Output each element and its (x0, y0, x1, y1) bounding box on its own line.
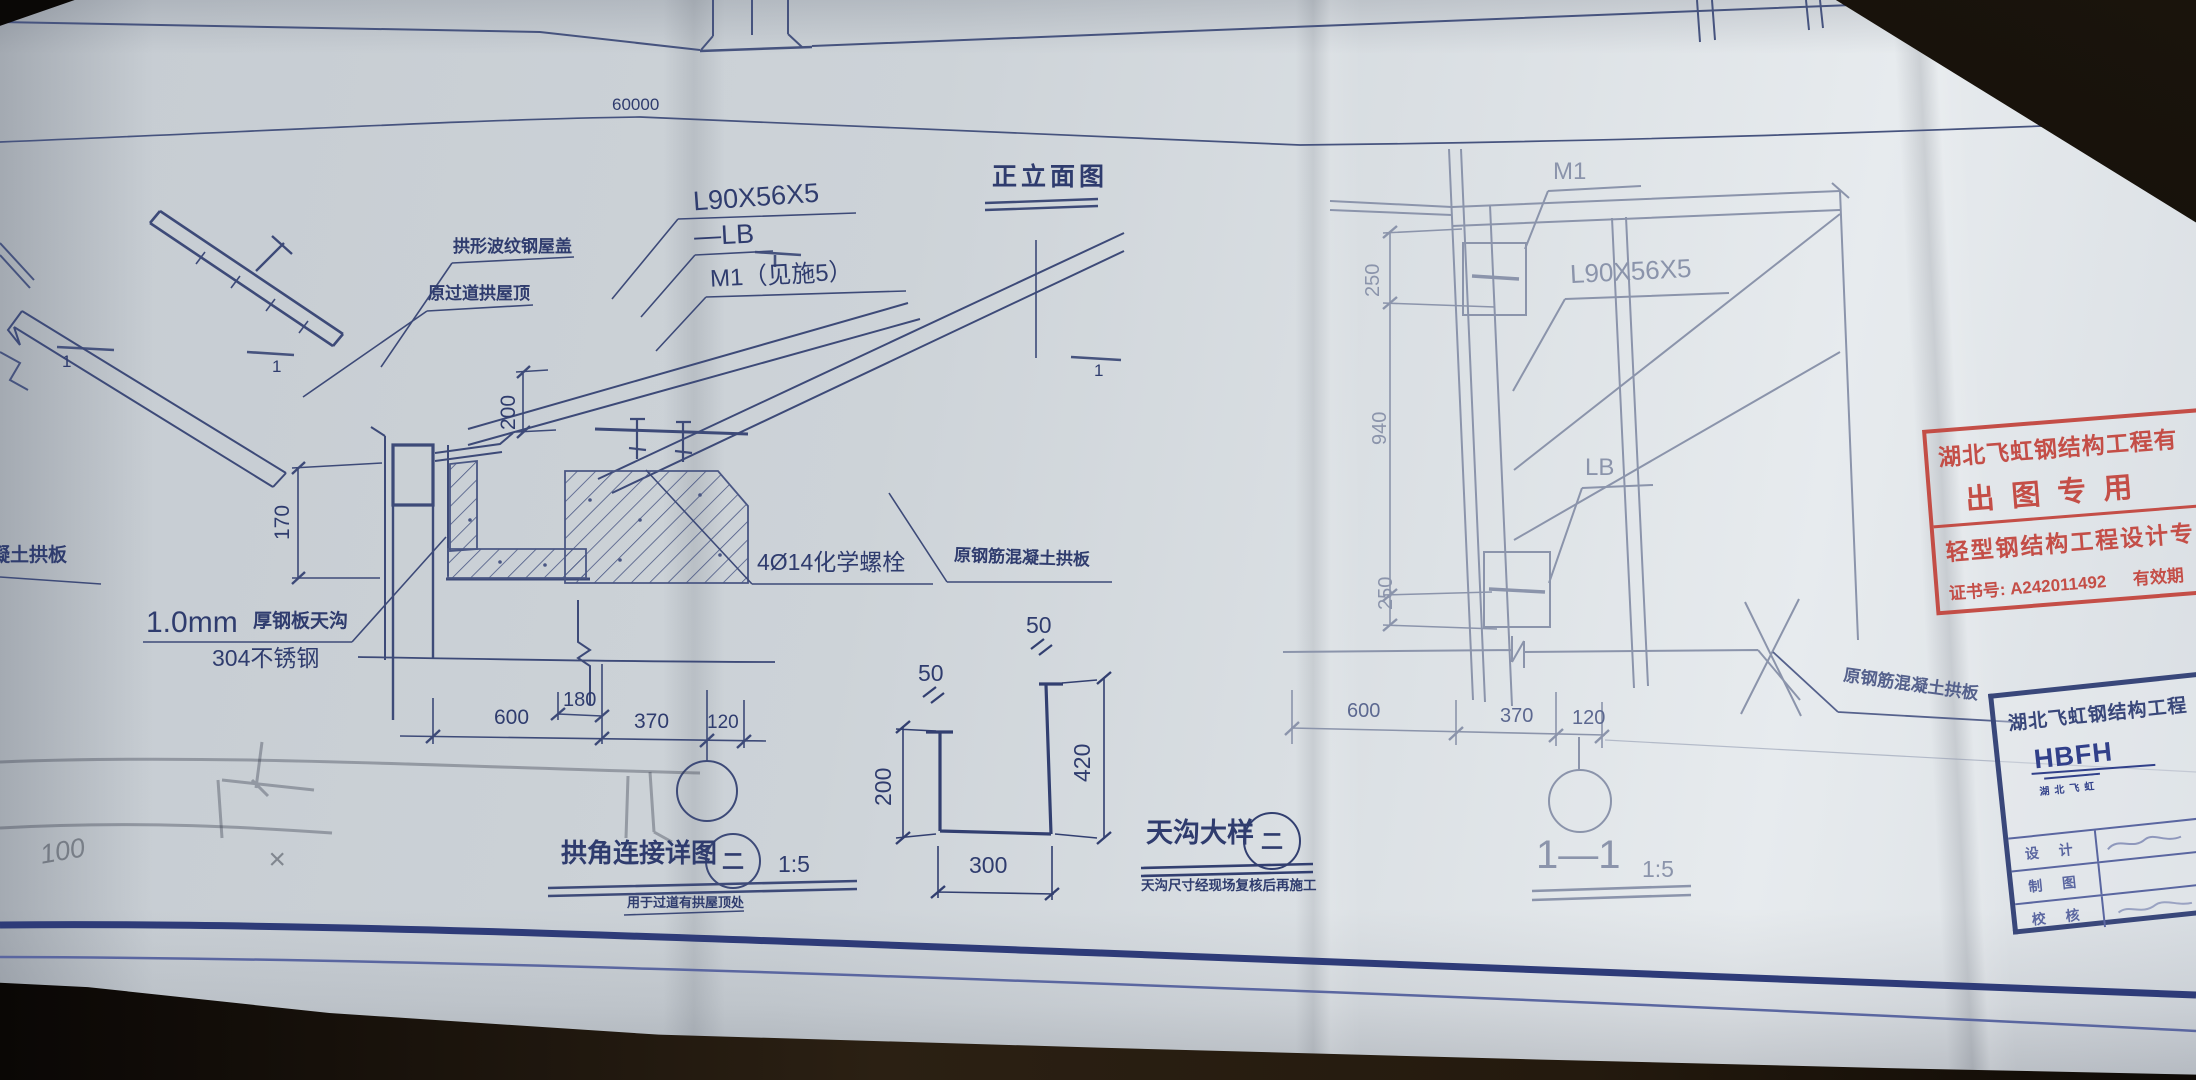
corner-detail-number: 二 (722, 851, 744, 873)
signature-mark (2096, 822, 2196, 857)
title-block-table: 设 计 制 图 校 核 (2008, 816, 2196, 929)
left-edge-slab-label: 混凝土拱板 (0, 546, 67, 565)
title-block: 湖北飞虹钢结构工程 HBFH 湖北飞虹 设 计 制 图 校 核 (1988, 672, 2196, 935)
stamp-certificate: 证书号: A242011492 有效期 (1948, 558, 2196, 604)
dim-250-top: 250 (1363, 264, 1383, 297)
dim-600-section: 600 (1347, 701, 1380, 721)
gutter-detail-number: 二 (1261, 831, 1283, 853)
sheet-border (0, 925, 2196, 1031)
label-gutter-text: 厚钢板天沟 (253, 612, 348, 631)
dim-940: 940 (1370, 412, 1390, 445)
blueprint-photo: 60000 正立面图 1 1 1 拱形波纹钢屋盖 原过道拱屋顶 L90X56X5… (0, 0, 2196, 1080)
drawing-linework (0, 0, 2196, 1080)
top-elevation-lines (0, 0, 2196, 390)
dim-120: 120 (707, 713, 739, 732)
dim-200-gutter: 200 (872, 768, 895, 806)
pencil-mark: × (268, 845, 286, 875)
gutter-detail-title: 天沟大样 (1146, 820, 1254, 847)
section-cut-mark: 1 (272, 358, 281, 375)
label-gutter-steel: 304不锈钢 (212, 647, 319, 670)
concrete-hatch (448, 461, 748, 583)
dim-600: 600 (494, 707, 529, 728)
dim-300: 300 (969, 854, 1007, 877)
label-chemical-bolts: 4Ø14化学螺栓 (757, 551, 905, 574)
section-cut-mark: 1 (62, 353, 71, 370)
pencil-scribbles (0, 742, 700, 842)
dim-420: 420 (1071, 744, 1094, 782)
corner-detail-note: 用于过道有拱屋顶处 (627, 896, 744, 909)
section-label-angle: L90X56X5 (1569, 255, 1692, 287)
stamp-cert-validity: 有效期 (2132, 566, 2184, 589)
gutter-detail-note: 天沟尺寸经现场复核后再施工 (1141, 879, 1317, 893)
dim-170: 170 (272, 505, 293, 540)
approval-stamp: 湖北飞虹钢结构工程有 出图专用 轻型钢结构工程设计专 证书号: A2420114… (1922, 407, 2196, 615)
stamp-cert-number: 证书号: A242011492 (1948, 572, 2107, 603)
elevation-title: 正立面图 (992, 165, 1108, 190)
dim-50-right: 50 (1026, 614, 1052, 637)
section-label-m1: M1 (1553, 160, 1586, 184)
dim-50-left: 50 (918, 662, 944, 685)
overall-dimension: 60000 (612, 96, 659, 113)
label-old-roof: 原过道拱屋顶 (428, 285, 530, 302)
title-block-company: 湖北飞虹钢结构工程 (2007, 689, 2196, 736)
dim-120-section: 120 (1572, 708, 1605, 728)
dim-250-bottom: 250 (1376, 577, 1396, 610)
section-title: 1—1 (1536, 835, 1621, 875)
dim-180: 180 (563, 690, 596, 710)
label-concrete-slab: 原钢筋混凝土拱板 (954, 547, 1091, 569)
dim-200: 200 (498, 395, 519, 430)
dim-370: 370 (634, 711, 669, 732)
label-gutter-thickness: 1.0mm (146, 608, 238, 638)
stamp-qualification: 轻型钢结构工程设计专 (1944, 512, 2196, 567)
label-lb: —LB (693, 220, 754, 250)
label-roof-cover: 拱形波纹钢屋盖 (453, 238, 572, 255)
dim-370-section: 370 (1500, 706, 1533, 726)
section-cut-mark: 1 (1094, 362, 1103, 379)
section-scale: 1:5 (1642, 858, 1674, 881)
corner-detail-scale: 1:5 (778, 853, 810, 876)
section-label-lb: LB (1585, 456, 1614, 480)
corner-detail-title: 拱角连接详图 (561, 840, 717, 866)
corner-detail-lines (8, 211, 1124, 720)
gutter-detail-lines (896, 639, 1313, 900)
